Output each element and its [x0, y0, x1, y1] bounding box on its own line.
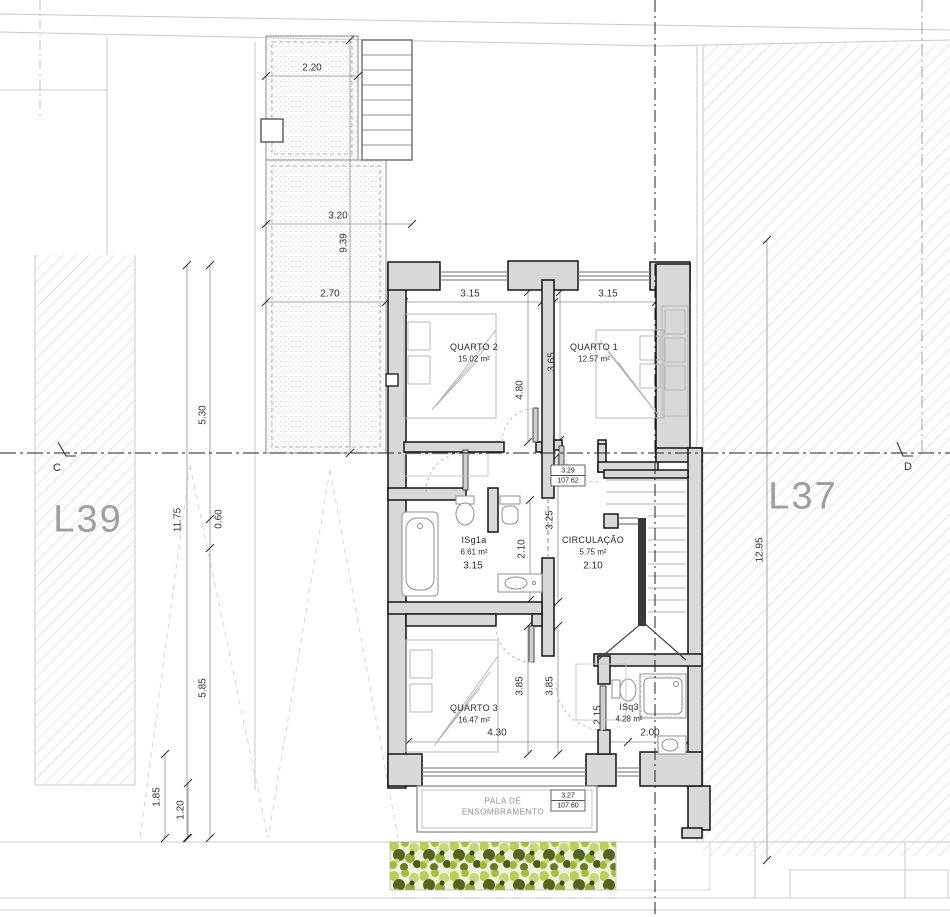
dim-terrace-mid: 3.20	[328, 211, 347, 222]
exterior-stair	[362, 40, 412, 160]
lot-label-l37: L37	[768, 476, 837, 519]
dim-left-b: 0.60	[214, 509, 225, 528]
dim-quarto3-depth-b: 3.85	[545, 676, 556, 695]
vegetation-bed	[390, 842, 710, 890]
dim-left-a: 5.30	[198, 405, 209, 424]
lot-right-hatch	[703, 44, 950, 856]
dim-left-c: 5.85	[198, 678, 209, 697]
dim-quarto3-depth-a: 3.85	[515, 676, 526, 695]
room-area-isq3: 4.28 m²	[615, 715, 642, 724]
dim-terrace-top: 2.20	[302, 63, 321, 74]
lot-label-l39: L39	[53, 499, 122, 542]
level-upper-altitude: 107.62	[557, 478, 578, 485]
dim-isq3-depth: 2.15	[593, 705, 604, 724]
dim-isq3-width: 2.00	[640, 728, 659, 739]
dim-isg1a-depth: 2.10	[517, 539, 528, 558]
dim-quarto3-width: 4.30	[487, 728, 506, 739]
section-marker-d: D	[904, 461, 912, 473]
level-upper-value: 3.29	[561, 468, 575, 475]
dim-quarto2-width: 3.15	[460, 289, 479, 300]
room-area-quarto3: 16.47 m²	[458, 716, 490, 725]
dim-right-total: 12.95	[755, 537, 766, 562]
room-name-isq3: ISq3	[619, 702, 639, 712]
dim-left-d: 1.85	[152, 787, 163, 806]
room-width-circulacao: 2.10	[583, 561, 602, 572]
level-lower-value: 3.27	[561, 793, 575, 800]
dim-quarto1-depth: 3.65	[547, 352, 558, 371]
floor-plan-drawing	[0, 0, 950, 917]
room-area-circulacao: 5.75 m²	[579, 548, 606, 557]
room-name-quarto1: QUARTO 1	[570, 342, 618, 352]
room-name-isg1a: ISg1a	[461, 535, 486, 545]
dim-quarto1-width: 3.15	[598, 289, 617, 300]
floor-plan-canvas: L39 L37 C D QUARTO 2 15.02 m² QUARTO 1 1…	[0, 0, 950, 917]
dim-quarto2-depth: 4.80	[515, 380, 526, 399]
shading-canopy-label-2: ENSOMBRAMENTO	[462, 808, 544, 817]
room-area-quarto2: 15.02 m²	[458, 355, 490, 364]
room-area-quarto1: 12.57 m²	[578, 355, 610, 364]
room-name-quarto2: QUARTO 2	[450, 342, 498, 352]
dim-hall-depth: 3.25	[545, 510, 556, 529]
dim-left-total: 11.75	[173, 508, 184, 532]
dim-left-e: 1.20	[176, 800, 187, 819]
terrace-planter-box	[261, 119, 283, 142]
shading-canopy-label-1: PALA DE	[485, 797, 522, 806]
dim-terrace-length: 9.39	[339, 233, 350, 252]
room-name-circulacao: CIRCULAÇÃO	[562, 535, 624, 545]
level-marker-boxes	[551, 465, 585, 811]
dim-terrace-low: 2.70	[320, 289, 339, 300]
room-width-isg1a: 3.15	[463, 561, 482, 572]
section-marker-c: C	[53, 462, 61, 474]
left-wall-window	[386, 374, 398, 386]
room-name-quarto3: QUARTO 3	[450, 703, 498, 713]
interior-stair	[598, 480, 686, 660]
level-lower-altitude: 107.60	[557, 803, 578, 810]
room-area-isg1a: 6.61 m²	[460, 548, 487, 557]
